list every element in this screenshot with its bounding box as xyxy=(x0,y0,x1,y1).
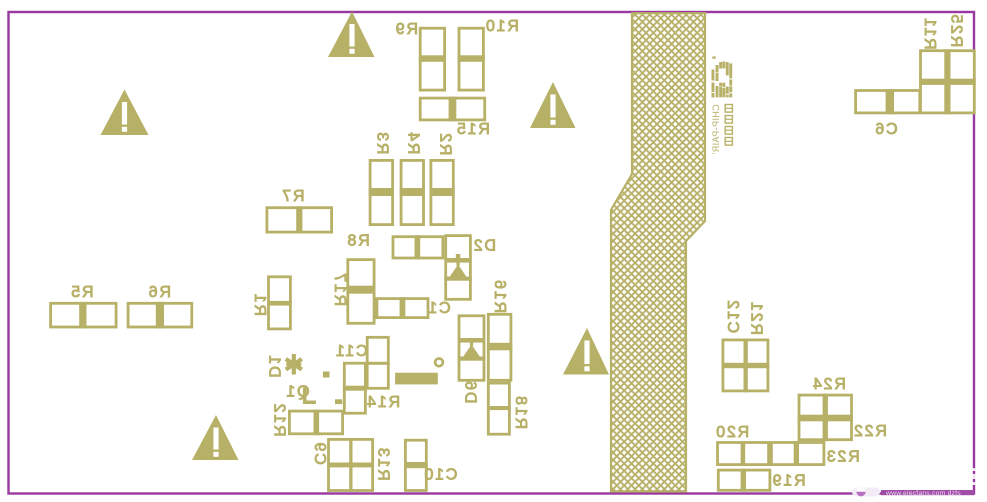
svg-text:R16: R16 xyxy=(491,278,508,313)
svg-text:C6: C6 xyxy=(874,121,898,138)
svg-text:R20: R20 xyxy=(714,424,749,441)
svg-text:R17: R17 xyxy=(331,271,348,306)
svg-text:R18: R18 xyxy=(512,394,529,429)
svg-text:R4: R4 xyxy=(404,130,421,154)
svg-text:R13: R13 xyxy=(374,446,391,481)
svg-text:R19: R19 xyxy=(771,473,806,490)
svg-text:R25: R25 xyxy=(948,13,965,48)
svg-text:R10: R10 xyxy=(484,18,519,35)
svg-text:R8: R8 xyxy=(346,233,370,250)
svg-text:R15: R15 xyxy=(455,121,490,138)
svg-text:R3: R3 xyxy=(373,130,390,154)
svg-text:D6: D6 xyxy=(462,379,479,403)
svg-text:R14: R14 xyxy=(365,394,400,411)
svg-text:CHIP-PAIR': CHIP-PAIR' xyxy=(711,104,721,155)
svg-text:R5: R5 xyxy=(69,284,93,301)
svg-text:R1: R1 xyxy=(251,292,268,316)
svg-text:C1: C1 xyxy=(427,300,451,317)
svg-text:C11: C11 xyxy=(334,343,368,360)
svg-text:C12: C12 xyxy=(724,298,741,333)
svg-text:R6: R6 xyxy=(147,284,171,301)
svg-text:R23: R23 xyxy=(825,449,860,466)
svg-text:D2: D2 xyxy=(472,238,496,255)
svg-text:R9: R9 xyxy=(394,21,418,38)
svg-text:R21: R21 xyxy=(748,300,765,335)
svg-text:R2: R2 xyxy=(437,131,454,155)
svg-text:R12: R12 xyxy=(271,402,288,437)
svg-text:R7: R7 xyxy=(280,188,304,205)
svg-text:R11: R11 xyxy=(921,16,938,50)
svg-text:D1: D1 xyxy=(266,354,283,378)
svg-text:R22: R22 xyxy=(852,423,887,440)
svg-text:C9: C9 xyxy=(311,441,328,465)
svg-text:www.elecfans.com dzfs: www.elecfans.com dzfs xyxy=(885,490,961,497)
svg-text:R24: R24 xyxy=(811,376,846,393)
svg-text:C10: C10 xyxy=(423,467,458,484)
